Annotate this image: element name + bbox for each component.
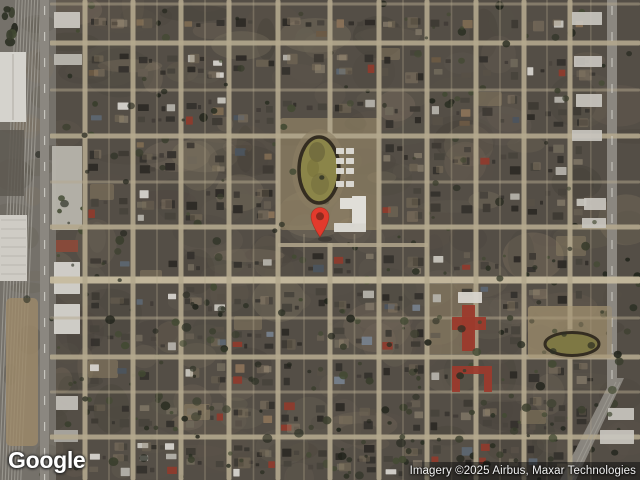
map-viewport[interactable]: Google Imagery ©2025 Airbus, Maxar Techn… [0, 0, 640, 480]
google-logo[interactable]: Google [8, 447, 85, 474]
pin-icon [308, 204, 332, 238]
satellite-imagery [0, 0, 640, 480]
attribution-text: Imagery ©2025 Airbus, Maxar Technologies [410, 465, 636, 477]
location-pin[interactable] [308, 204, 332, 238]
